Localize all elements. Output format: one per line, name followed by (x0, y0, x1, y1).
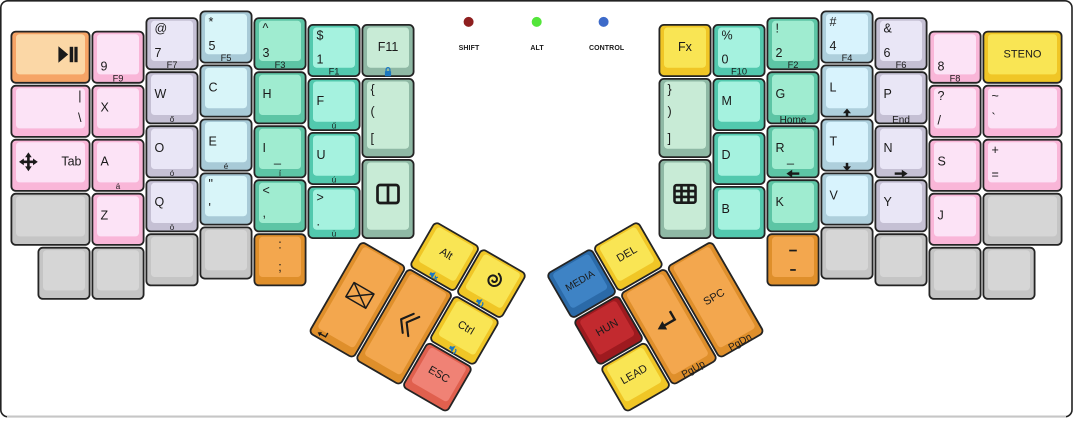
svg-text:ó: ó (170, 169, 175, 178)
svg-text:": " (209, 177, 213, 191)
svg-text:_: _ (273, 151, 282, 165)
svg-text:\: \ (78, 111, 82, 125)
svg-text:4: 4 (830, 39, 837, 53)
svg-text:Z: Z (101, 209, 109, 223)
svg-text:]: ] (668, 132, 671, 146)
svg-text:|: | (78, 89, 81, 103)
svg-text:3: 3 (263, 46, 270, 60)
svg-text:1: 1 (317, 53, 324, 67)
svg-text:V: V (830, 188, 839, 202)
svg-text:X: X (101, 101, 110, 115)
svg-text:STENO: STENO (1004, 49, 1042, 61)
svg-text:<: < (263, 184, 270, 198)
svg-text:_: _ (786, 151, 795, 165)
svg-text:,: , (263, 206, 266, 220)
svg-text:Fx: Fx (678, 40, 693, 54)
svg-text:5: 5 (209, 39, 216, 53)
svg-text:End: End (892, 115, 910, 126)
svg-text:R: R (776, 141, 785, 155)
svg-text:6: 6 (884, 46, 891, 60)
svg-text:F2: F2 (788, 60, 799, 70)
svg-text:.: . (317, 215, 320, 229)
svg-text:H: H (263, 87, 272, 101)
svg-text:`: ` (992, 111, 996, 125)
svg-text:G: G (776, 87, 786, 101)
svg-text:>: > (317, 190, 324, 204)
svg-text:0: 0 (722, 53, 729, 67)
svg-text:F11: F11 (378, 40, 399, 54)
svg-text:2: 2 (776, 46, 783, 60)
svg-text:+: + (992, 143, 999, 157)
svg-text:A: A (101, 155, 110, 169)
svg-text:*: * (209, 15, 214, 29)
svg-text:é: é (224, 162, 229, 171)
svg-text:Home: Home (780, 115, 807, 126)
svg-text:I: I (263, 141, 266, 155)
svg-text:=: = (992, 167, 999, 181)
svg-text:9: 9 (101, 59, 108, 73)
svg-text:ALT: ALT (530, 45, 544, 52)
svg-text:M: M (722, 94, 732, 108)
svg-text:}: } (668, 82, 672, 96)
svg-text:F10: F10 (731, 67, 747, 77)
svg-text:W: W (155, 87, 167, 101)
svg-text:ű: ű (332, 122, 337, 131)
svg-text:F: F (317, 94, 325, 108)
svg-text:E: E (209, 134, 217, 148)
svg-text:D: D (722, 148, 731, 162)
svg-text:): ) (668, 105, 672, 119)
svg-text:J: J (938, 209, 944, 223)
svg-text:7: 7 (155, 46, 162, 60)
svg-text:F1: F1 (329, 67, 340, 77)
svg-text:;: ; (278, 260, 281, 274)
svg-text:Q: Q (155, 195, 165, 209)
svg-text:F9: F9 (113, 74, 124, 84)
svg-text:F7: F7 (167, 60, 178, 70)
svg-text:ú: ú (332, 176, 336, 185)
svg-text:@: @ (155, 22, 168, 36)
svg-text:$: $ (317, 28, 324, 42)
svg-text:O: O (155, 141, 165, 155)
svg-text::: : (278, 238, 281, 252)
svg-text:#: # (830, 15, 837, 29)
svg-text:/: / (938, 113, 942, 127)
svg-text:^: ^ (263, 22, 269, 36)
svg-text:P: P (884, 87, 892, 101)
svg-text:C: C (209, 80, 218, 94)
svg-text:!: ! (776, 22, 779, 36)
svg-text:~: ~ (992, 89, 999, 103)
svg-text:SHIFT: SHIFT (459, 45, 480, 52)
svg-text:8: 8 (938, 59, 945, 73)
svg-text:[: [ (371, 132, 375, 146)
svg-text:F8: F8 (950, 74, 961, 84)
svg-text:': ' (209, 201, 211, 215)
svg-text:Y: Y (884, 195, 893, 209)
svg-text:F4: F4 (842, 53, 853, 63)
svg-text:ö: ö (170, 223, 175, 232)
svg-text:%: % (722, 28, 733, 42)
svg-text:B: B (722, 202, 730, 216)
svg-text:F3: F3 (275, 60, 286, 70)
svg-text:T: T (830, 134, 838, 148)
svg-text:F6: F6 (896, 60, 907, 70)
svg-text:CONTROL: CONTROL (589, 45, 625, 52)
svg-text:S: S (938, 155, 946, 169)
svg-text:{: { (371, 82, 375, 96)
svg-text:?: ? (938, 89, 945, 103)
svg-text:ő: ő (170, 115, 175, 124)
svg-text:K: K (776, 195, 785, 209)
svg-text:N: N (884, 141, 893, 155)
svg-text:Tab: Tab (61, 155, 81, 169)
svg-text:á: á (116, 182, 121, 191)
svg-text:F5: F5 (221, 53, 232, 63)
svg-text:ü: ü (332, 230, 336, 239)
svg-text:U: U (317, 148, 326, 162)
svg-text:&: & (884, 22, 893, 36)
svg-text:L: L (830, 80, 837, 94)
